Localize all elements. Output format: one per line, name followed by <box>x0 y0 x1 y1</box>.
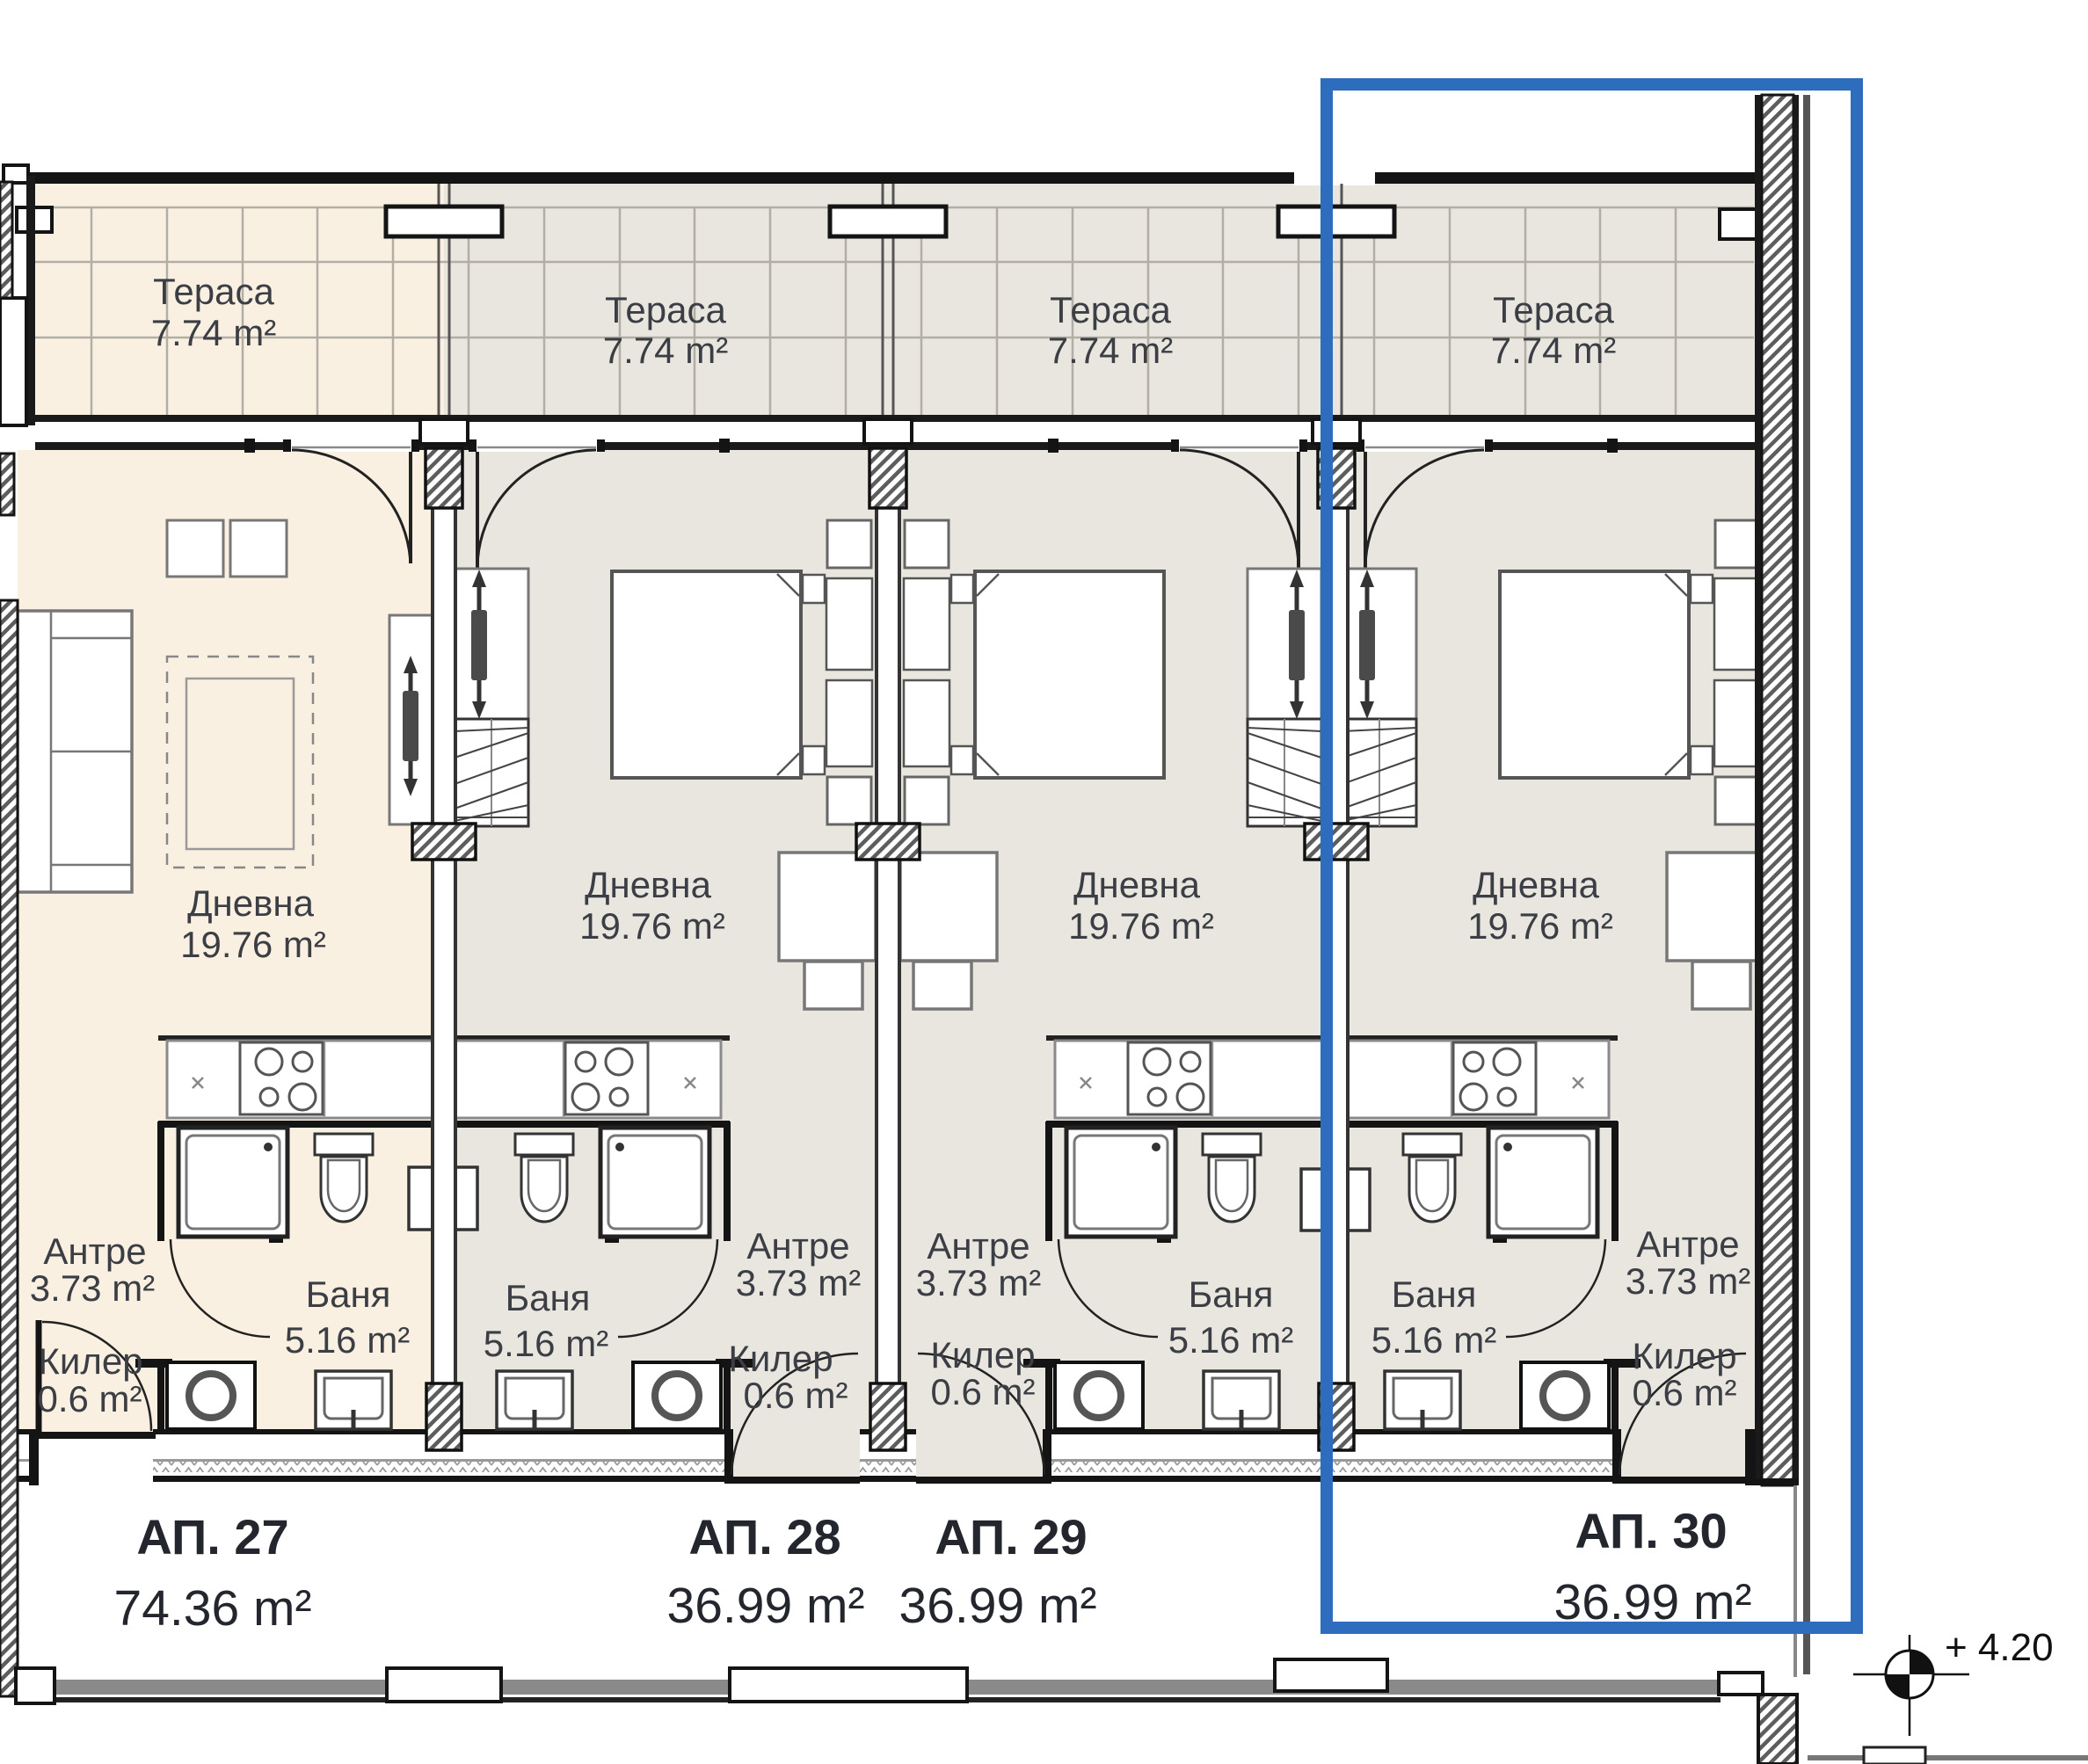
svg-text:Баня: Баня <box>306 1274 391 1315</box>
svg-text:Килер: Килер <box>38 1340 142 1382</box>
svg-text:Дневна: Дневна <box>1073 864 1201 905</box>
svg-text:Антре: Антре <box>1636 1223 1739 1265</box>
svg-text:5.16 m²: 5.16 m² <box>1371 1319 1496 1361</box>
svg-text:5.16 m²: 5.16 m² <box>285 1319 410 1361</box>
svg-text:3.73 m²: 3.73 m² <box>1626 1260 1750 1302</box>
svg-text:Баня: Баня <box>1392 1274 1477 1315</box>
svg-text:Антре: Антре <box>43 1230 146 1272</box>
svg-text:19.76 m²: 19.76 m² <box>180 924 326 965</box>
svg-text:0.6 m²: 0.6 m² <box>743 1375 848 1416</box>
svg-text:0.6 m²: 0.6 m² <box>1632 1372 1736 1413</box>
svg-text:Килер: Килер <box>1632 1335 1736 1376</box>
svg-text:7.74 m²: 7.74 m² <box>1048 330 1173 371</box>
svg-text:5.16 m²: 5.16 m² <box>484 1323 608 1364</box>
svg-text:7.74 m²: 7.74 m² <box>151 312 276 353</box>
svg-text:0.6 m²: 0.6 m² <box>930 1371 1035 1412</box>
svg-text:3.73 m²: 3.73 m² <box>916 1262 1041 1303</box>
svg-text:74.36 m²: 74.36 m² <box>114 1580 312 1637</box>
svg-text:Килер: Килер <box>930 1334 1035 1376</box>
svg-text:АП. 27: АП. 27 <box>136 1509 288 1564</box>
svg-text:3.73 m²: 3.73 m² <box>30 1267 155 1309</box>
svg-text:19.76 m²: 19.76 m² <box>579 905 725 947</box>
svg-text:36.99 m²: 36.99 m² <box>899 1578 1097 1634</box>
svg-text:Тераса: Тераса <box>153 271 274 312</box>
svg-text:5.16 m²: 5.16 m² <box>1168 1319 1293 1361</box>
svg-text:19.76 m²: 19.76 m² <box>1467 905 1613 947</box>
svg-text:АП. 30: АП. 30 <box>1575 1503 1727 1558</box>
svg-text:Баня: Баня <box>506 1277 591 1318</box>
svg-text:АП. 29: АП. 29 <box>935 1509 1087 1564</box>
svg-text:Тераса: Тераса <box>1050 289 1171 330</box>
svg-text:АП. 28: АП. 28 <box>688 1509 840 1564</box>
svg-text:7.74 m²: 7.74 m² <box>1491 330 1616 371</box>
svg-text:Дневна: Дневна <box>1473 864 1600 905</box>
svg-text:36.99 m²: 36.99 m² <box>667 1578 865 1634</box>
svg-text:+ 4.20: + 4.20 <box>1945 1626 2054 1669</box>
svg-text:19.76 m²: 19.76 m² <box>1068 905 1214 947</box>
svg-text:Дневна: Дневна <box>187 882 315 924</box>
svg-text:3.73 m²: 3.73 m² <box>736 1262 861 1303</box>
svg-text:Баня: Баня <box>1189 1274 1274 1315</box>
svg-text:Тераса: Тераса <box>605 289 726 330</box>
svg-text:0.6 m²: 0.6 m² <box>37 1378 142 1419</box>
svg-text:Тераса: Тераса <box>1493 289 1614 330</box>
svg-text:Килер: Килер <box>728 1338 833 1379</box>
svg-text:Антре: Антре <box>927 1225 1029 1267</box>
svg-text:Дневна: Дневна <box>585 864 712 905</box>
svg-text:Антре: Антре <box>746 1225 849 1267</box>
svg-text:7.74 m²: 7.74 m² <box>603 330 728 371</box>
